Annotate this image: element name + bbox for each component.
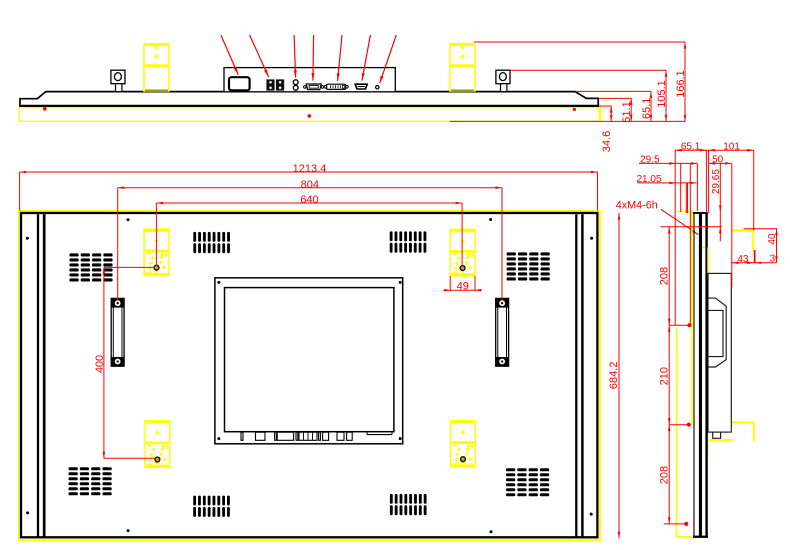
svg-text:34.6: 34.6 xyxy=(601,131,613,152)
svg-text:101: 101 xyxy=(723,141,740,152)
svg-text:43: 43 xyxy=(737,254,749,265)
svg-text:29.5: 29.5 xyxy=(640,155,660,166)
svg-text:208: 208 xyxy=(659,466,671,484)
svg-text:65.1: 65.1 xyxy=(641,98,653,119)
svg-text:3: 3 xyxy=(770,254,776,265)
svg-text:49: 49 xyxy=(457,280,469,292)
svg-text:640: 640 xyxy=(300,194,318,206)
svg-text:4xM4-6h: 4xM4-6h xyxy=(616,199,658,211)
svg-text:208: 208 xyxy=(659,267,671,285)
svg-text:1213.4: 1213.4 xyxy=(293,163,327,175)
svg-text:804: 804 xyxy=(301,179,319,191)
svg-text:400: 400 xyxy=(94,355,106,373)
svg-text:21.05: 21.05 xyxy=(636,174,661,185)
svg-text:684.2: 684.2 xyxy=(608,362,620,390)
svg-text:210: 210 xyxy=(659,367,671,385)
svg-text:105.1: 105.1 xyxy=(656,80,668,108)
svg-text:166.1: 166.1 xyxy=(675,70,687,98)
svg-text:50: 50 xyxy=(712,155,724,166)
svg-text:40: 40 xyxy=(767,233,778,245)
svg-text:51.1: 51.1 xyxy=(621,101,633,122)
svg-text:29.65: 29.65 xyxy=(711,169,722,194)
svg-text:65.1: 65.1 xyxy=(681,141,701,152)
